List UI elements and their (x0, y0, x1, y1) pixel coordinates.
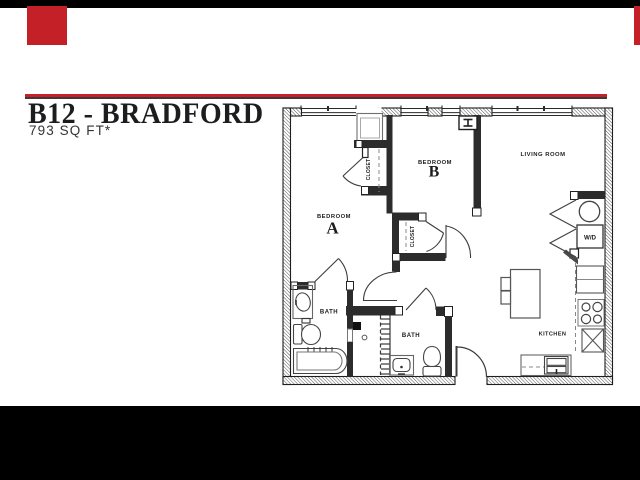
svg-text:A: A (326, 219, 339, 238)
svg-text:W/D: W/D (584, 235, 597, 242)
svg-text:KITCHEN: KITCHEN (539, 332, 567, 338)
svg-text:BATH: BATH (402, 333, 420, 339)
svg-text:CLOSET: CLOSET (366, 159, 372, 180)
svg-text:BATH: BATH (320, 310, 338, 316)
svg-text:LIVING ROOM: LIVING ROOM (520, 152, 565, 158)
svg-text:CLOSET: CLOSET (410, 226, 416, 247)
svg-text:B: B (429, 164, 440, 181)
